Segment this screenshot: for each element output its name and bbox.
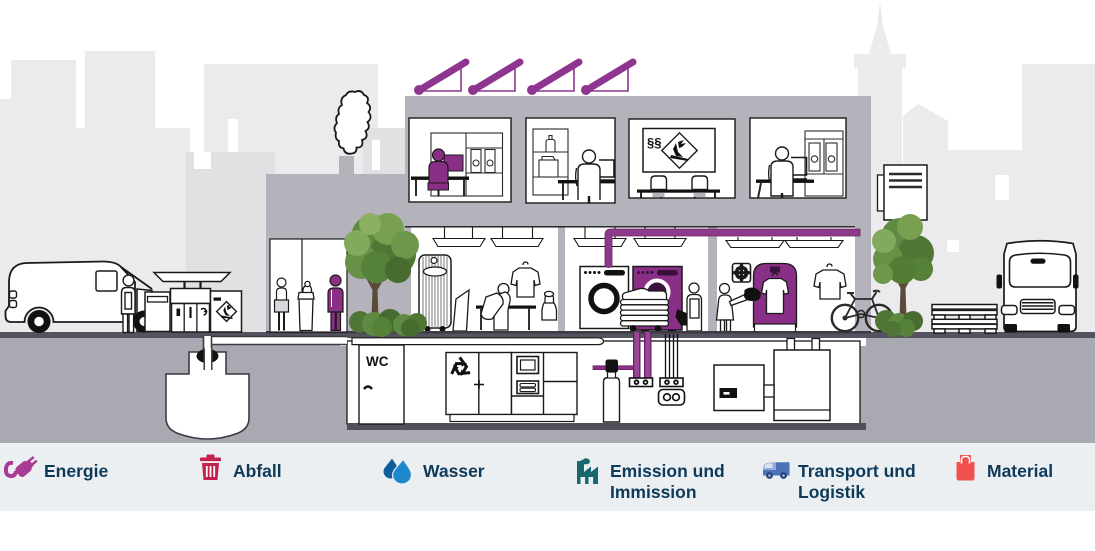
svg-text:Wasser: Wasser (423, 461, 485, 481)
svg-text:WC: WC (366, 354, 389, 369)
svg-text:Transport und: Transport und (798, 461, 916, 481)
svg-text:Material: Material (987, 461, 1053, 481)
svg-text:Emission und: Emission und (610, 461, 725, 481)
svg-text:Abfall: Abfall (233, 461, 282, 481)
svg-text:Logistik: Logistik (798, 482, 865, 502)
svg-text:Energie: Energie (44, 461, 108, 481)
svg-text:Immission: Immission (610, 482, 697, 502)
svg-text:§§: §§ (647, 135, 661, 150)
